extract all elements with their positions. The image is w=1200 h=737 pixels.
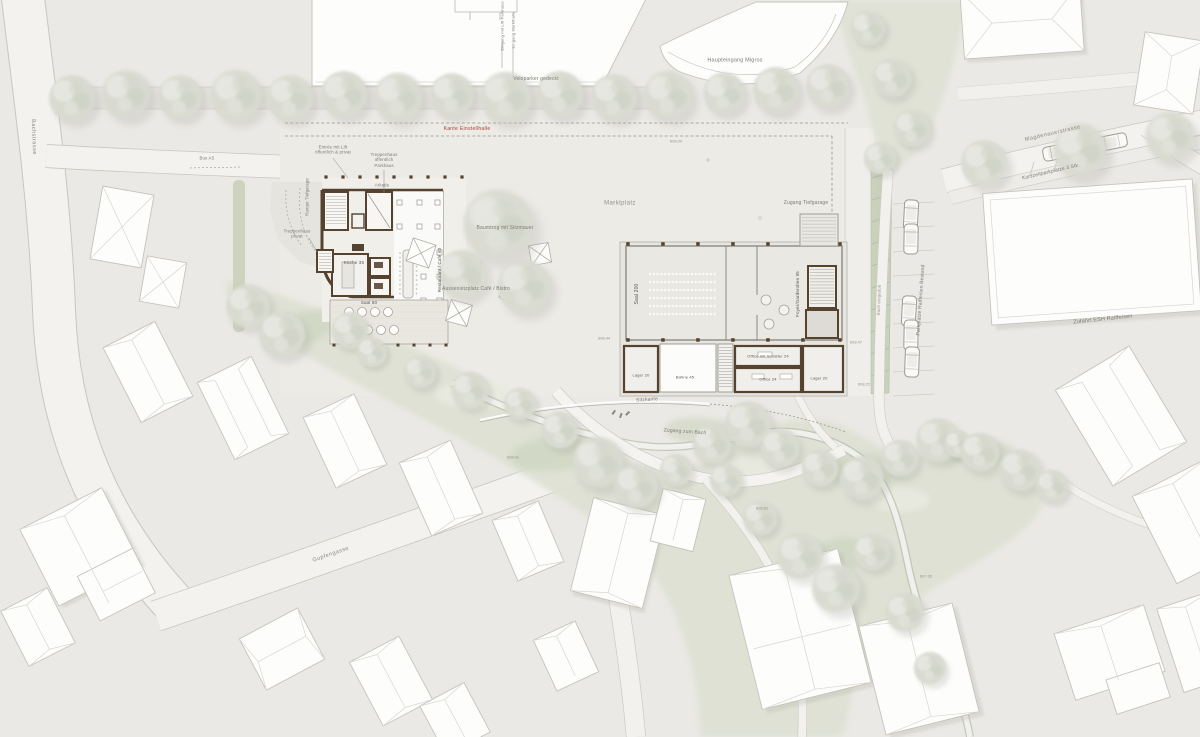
- building: [492, 501, 564, 581]
- ramp-area: [270, 182, 322, 268]
- building: [303, 394, 387, 488]
- building: [349, 636, 432, 726]
- building: [1134, 32, 1200, 114]
- building: [533, 621, 598, 691]
- building: [570, 497, 669, 613]
- people-figures: [611, 410, 630, 418]
- raiffeisen-building: [983, 179, 1200, 331]
- building: [239, 608, 325, 690]
- building: [90, 186, 154, 268]
- building: [1054, 605, 1173, 725]
- site-plan-drawing: [0, 0, 1200, 737]
- building: [420, 683, 490, 737]
- garage-entry: [800, 214, 838, 246]
- building: [197, 356, 289, 460]
- building: [103, 321, 193, 422]
- building: [139, 256, 186, 308]
- site-plan: Bachstrasse Bus AS Veloparker gedeckt Ei…: [0, 0, 1200, 737]
- market-hall: [620, 242, 847, 396]
- building: [960, 0, 1088, 63]
- building: [1055, 346, 1186, 486]
